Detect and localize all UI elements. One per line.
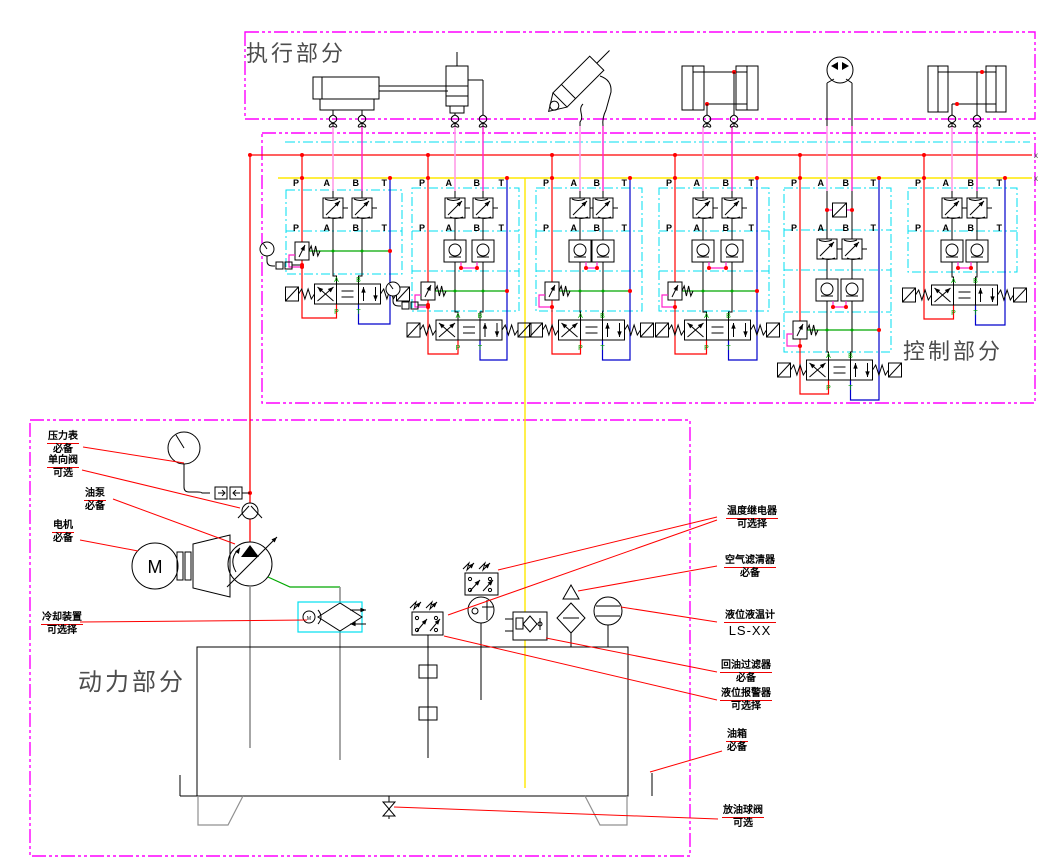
svg-text:x: x — [1034, 151, 1038, 160]
level-temp-gauge — [594, 597, 622, 647]
svg-text:A: A — [571, 223, 578, 233]
svg-text:T: T — [997, 223, 1003, 233]
svg-text:P: P — [578, 345, 583, 352]
svg-text:A: A — [951, 278, 956, 285]
svg-text:P: P — [791, 223, 797, 233]
valve-station-2: PPAABBTTABPT — [386, 126, 531, 360]
section-title-power: 动力部分 — [78, 662, 186, 697]
actuators — [313, 43, 1006, 127]
svg-text:P: P — [456, 345, 461, 352]
callout-check-valve: 单向阀可选 — [28, 455, 98, 480]
callout-temp-relay: 温度继电器可选择 — [708, 506, 796, 531]
svg-text:B: B — [848, 353, 853, 360]
callout-oil-tank: 油箱必备 — [710, 729, 764, 754]
svg-text:B: B — [723, 178, 730, 188]
svg-text:T: T — [499, 223, 505, 233]
svg-text:B: B — [968, 178, 975, 188]
svg-text:P: P — [915, 178, 921, 188]
svg-text:B: B — [353, 178, 360, 188]
svg-text:T: T — [478, 345, 483, 352]
svg-text:B: B — [478, 313, 483, 320]
valve-station-4: PPAABBTTABPT — [656, 126, 780, 360]
svg-text:A: A — [943, 223, 950, 233]
callout-air-filter: 空气滤清器必备 — [706, 555, 794, 580]
callout-cooler: 冷却装置可选择 — [20, 612, 104, 637]
temperature-switch-2 — [463, 563, 498, 595]
svg-text:B: B — [968, 223, 975, 233]
valve-station-1: PPAABBTTABPT — [260, 126, 410, 324]
svg-text:B: B — [726, 313, 731, 320]
svg-text:A: A — [324, 223, 331, 233]
pressure-gauge — [168, 432, 250, 499]
svg-text:A: A — [571, 178, 578, 188]
svg-text:B: B — [474, 178, 481, 188]
temperature-switch-1 — [410, 602, 443, 758]
callout-return-filter: 回油过滤器必备 — [700, 660, 792, 685]
svg-text:B: B — [843, 178, 850, 188]
svg-text:A: A — [578, 313, 583, 320]
svg-text:P: P — [293, 223, 299, 233]
svg-text:T: T — [997, 178, 1003, 188]
svg-text:A: A — [694, 223, 701, 233]
svg-text:B: B — [594, 178, 601, 188]
svg-text:T: T — [622, 178, 628, 188]
svg-text:A: A — [943, 178, 950, 188]
svg-text:T: T — [382, 178, 388, 188]
svg-text:B: B — [600, 313, 605, 320]
svg-text:P: P — [666, 178, 672, 188]
svg-text:A: A — [334, 277, 339, 284]
svg-text:T: T — [749, 178, 755, 188]
section-title-control: 控制部分 — [903, 334, 1003, 366]
svg-text:P: P — [915, 223, 921, 233]
svg-text:T: T — [871, 223, 877, 233]
callout-level-temp-gauge: 液位液温计LS-XX — [706, 610, 794, 638]
cooler: M — [250, 577, 366, 760]
svg-text:P: P — [826, 385, 831, 392]
svg-text:P: P — [293, 178, 299, 188]
drain-ball-valve — [383, 796, 395, 819]
svg-text:T: T — [871, 178, 877, 188]
actuator-twin-cylinders — [682, 66, 758, 127]
svg-text:A: A — [704, 313, 709, 320]
svg-text:P: P — [334, 309, 339, 316]
svg-text:T: T — [356, 309, 361, 316]
svg-text:A: A — [826, 353, 831, 360]
svg-text:A: A — [446, 223, 453, 233]
callout-pressure-gauge: 压力表必备 — [28, 431, 98, 456]
inline-check-valve — [238, 503, 262, 519]
callout-oil-pump: 油泵必备 — [60, 488, 130, 513]
svg-text:B: B — [356, 277, 361, 284]
svg-text:P: P — [791, 178, 797, 188]
schematic-svg: xxPPAABBTTABPTPPAABBTTABPTPPAABBTTABPTPP… — [0, 0, 1053, 866]
electric-motor: M — [132, 535, 240, 597]
svg-text:P: P — [666, 223, 672, 233]
actuator-hydraulic-breaker — [542, 43, 617, 126]
svg-text:T: T — [726, 345, 731, 352]
svg-text:P: P — [419, 178, 425, 188]
svg-text:B: B — [973, 278, 978, 285]
valve-station-3: PPAABBTTABPT — [530, 126, 654, 360]
svg-text:T: T — [499, 178, 505, 188]
svg-text:B: B — [594, 223, 601, 233]
svg-text:T: T — [749, 223, 755, 233]
svg-text:M: M — [148, 557, 163, 577]
svg-text:P: P — [419, 223, 425, 233]
hydraulic-schematic-drawing: xxPPAABBTTABPTPPAABBTTABPTPPAABBTTABPTPP… — [0, 0, 1053, 866]
svg-text:T: T — [848, 385, 853, 392]
valve-station-6: PPAABBTTABPT — [903, 126, 1027, 325]
svg-text:x: x — [1034, 174, 1038, 183]
svg-text:A: A — [818, 178, 825, 188]
svg-text:A: A — [456, 313, 461, 320]
callout-electric-motor: 电机必备 — [28, 520, 98, 545]
level-alarm-float — [468, 597, 494, 700]
svg-text:P: P — [543, 178, 549, 188]
svg-text:A: A — [694, 178, 701, 188]
actuator-hydraulic-motor — [827, 57, 853, 126]
svg-text:T: T — [600, 345, 605, 352]
callout-drain-ball-valve: 放油球阀可选 — [704, 805, 782, 830]
svg-text:T: T — [382, 223, 388, 233]
valve-station-5: PPAABBTTABPT — [778, 126, 902, 400]
svg-text:M: M — [307, 616, 311, 622]
svg-text:T: T — [622, 223, 628, 233]
svg-text:B: B — [474, 223, 481, 233]
svg-text:B: B — [723, 223, 730, 233]
return-filter — [505, 612, 547, 640]
svg-text:A: A — [446, 178, 453, 188]
hydraulic-pump — [227, 537, 277, 587]
svg-text:P: P — [543, 223, 549, 233]
leader-lines — [80, 447, 722, 819]
svg-text:P: P — [704, 345, 709, 352]
svg-text:B: B — [353, 223, 360, 233]
bus-lines: xx — [250, 142, 1038, 788]
svg-text:B: B — [843, 223, 850, 233]
actuator-twin-cylinders-2 — [928, 66, 1006, 127]
svg-text:T: T — [973, 310, 978, 317]
section-title-execution: 执行部分 — [246, 36, 346, 68]
svg-text:A: A — [324, 178, 331, 188]
svg-text:P: P — [951, 310, 956, 317]
callout-level-alarm: 液位报警器可选择 — [700, 688, 792, 713]
svg-text:A: A — [818, 223, 825, 233]
air-filter — [557, 585, 585, 647]
actuator-vertical-cylinder — [446, 52, 487, 127]
